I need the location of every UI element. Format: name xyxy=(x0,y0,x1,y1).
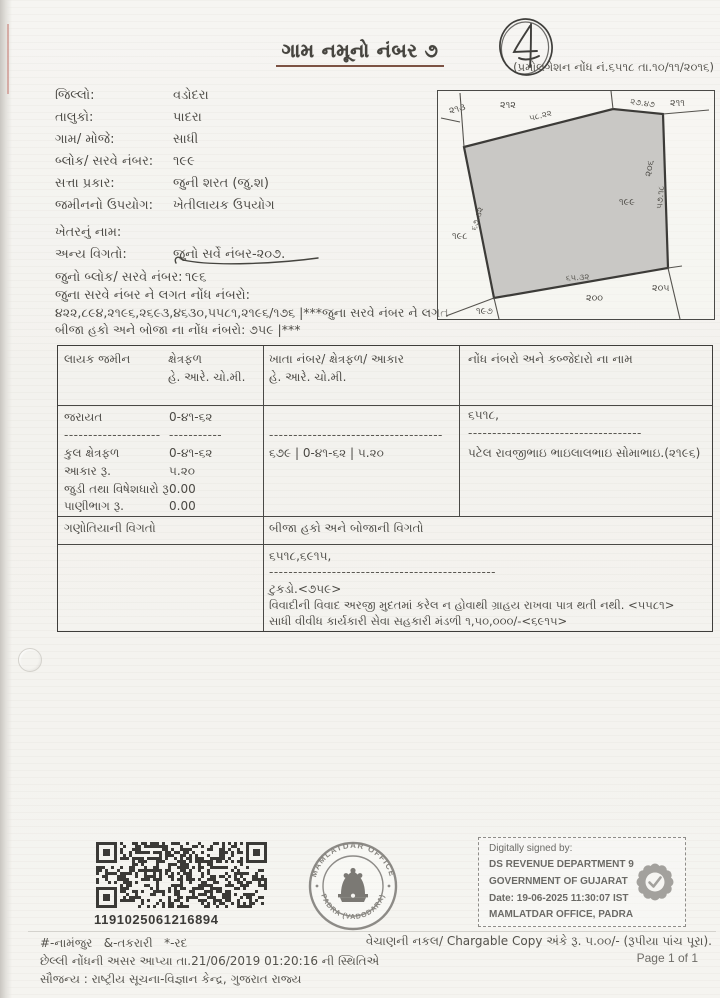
parcel-sketch-svg: ૨૧૩ ૨૧૨ ૫૮.૨૨ ૨૭.૪૭ ૨૧૧ ૨૦૬ ૫૭.૧૮ ૧૯૯ ૧૯… xyxy=(438,91,714,319)
table-subheader-rule xyxy=(58,544,712,545)
tenant-details-header: ગણોતિયાની વિગતો xyxy=(64,521,156,536)
other-rights-dispute: વિવાદીની વિવાદ અરજી મુદતમાં કરેલ ન હોવાથ… xyxy=(269,598,674,613)
footer-divider xyxy=(28,931,716,932)
sig-signer: DS REVENUE DEPARTMENT 9 xyxy=(489,859,634,870)
header-area: ક્ષેત્રફળ xyxy=(168,352,202,367)
parcel-199: ૧૯૯ xyxy=(619,197,635,208)
field-row-survey-number: બ્લોક/ સરવે નંબર:૧૯૯ xyxy=(55,154,195,169)
field-row-old-survey-number: જુનો બ્લોક/ સરવે નંબર:૧૯૬ xyxy=(55,270,206,285)
sig-org: GOVERNMENT OF GUJARAT xyxy=(489,876,628,887)
other-rights-society: સાધી વીવીધ કાર્યકારી સેવા સહકારી મંડળી ૧… xyxy=(269,614,567,629)
mamlatdar-office-stamp: MAMLATDAR OFFICE PADRA (VADODARA) xyxy=(307,840,399,932)
neighbor-211: ૨૧૧ xyxy=(670,98,685,109)
old-survey-notes-label: જુના સરવે નંબર ને લગત નોંધ નંબરો: xyxy=(55,288,250,303)
header-eligible-land: લાયક જમીન xyxy=(64,352,130,367)
measure-right: ૫૭.૧૮ xyxy=(655,185,667,209)
other-rights-piece: ટુકડો.<૭૫૯> xyxy=(269,582,341,597)
promulgation-note: (પ્રમોલગેશન નોંધ નં.૬૫૧૮ તા.૧૦/૧૧/૨૦૧૬) xyxy=(513,60,714,75)
header-area-unit: હે. આરે. ચો.મી. xyxy=(168,370,245,385)
field-row-village: ગામ/ મોજે:સાધી xyxy=(55,132,198,147)
measure-top-right: ૨૭.૪૭ xyxy=(630,97,656,110)
measure-top: ૫૮.૨૨ xyxy=(528,108,554,123)
account-cell-separator: ------------------------------------ xyxy=(269,428,443,442)
scanned-document-page: ગામ નમૂનો નંબર ૭ (પ્રમોલગેશન નોંધ નં.૬૫૧… xyxy=(0,0,720,998)
sig-date: Date: 19-06-2025 11:30:07 IST xyxy=(489,893,629,904)
neighbor-213: ૨૧૩ xyxy=(448,102,468,117)
neighbor-205: ૨૦૫ xyxy=(652,283,670,294)
land-row: જરાયત0-૪૧-૬૨ xyxy=(64,410,212,425)
table-divider-1 xyxy=(263,346,264,631)
neighbor-198: ૧૯૮ xyxy=(452,231,468,242)
handwritten-underline xyxy=(170,254,322,270)
notes-cell-number: ૬૫૧૮, xyxy=(468,408,499,423)
other-rights-header: બીજા હકો અને બોજાની વિગતો xyxy=(269,521,424,536)
footer-legend: #-નામંજુર &-તકરારી *-રદ xyxy=(40,936,187,951)
land-row-separator: ------------------------------- xyxy=(64,428,222,442)
parcel-polygon xyxy=(464,109,668,298)
land-row-judi: જુડી તથા વિષેશધારો રૂ0.00 xyxy=(64,482,196,497)
digital-signature-box: Digitally signed by: DS REVENUE DEPARTME… xyxy=(478,837,686,927)
account-cell-value: ૬૭૯ | 0-૪૧-૬૨ | ૫.૨૦ xyxy=(269,446,384,461)
footer-last-note: છેલ્લી નોંધની અસર આપ્યા તા.21/06/2019 01… xyxy=(40,954,379,969)
land-row-total: કુલ ક્ષેત્રફળ0-૪૧-૬૨ xyxy=(64,446,212,461)
other-rights-numbers: ૬૫૧૮,૬૯૧૫, xyxy=(269,549,331,564)
other-rights-separator: ----------------------------------------… xyxy=(269,565,496,579)
scan-edge-shadow xyxy=(0,0,12,998)
page-title: ગામ નમૂનો નંબર ૭ xyxy=(276,40,445,67)
qr-number: 1191025061216894 xyxy=(94,912,219,927)
field-row-land-use: જમીનનો ઉપયોગ:ખેતીલાયક ઉપયોગ xyxy=(55,198,275,213)
header-notes-names: નોંધ નંબરો અને કબ્જેદારો ના નામ xyxy=(468,352,633,367)
neighbor-197: ૧૯૭ xyxy=(476,306,493,317)
measure-bottom: ૬૫.૩૨ xyxy=(566,272,591,284)
land-record-table: લાયક જમીન ક્ષેત્રફળ હે. આરે. ચો.મી. ખાતા… xyxy=(57,345,713,632)
table-section-rule xyxy=(58,516,712,517)
field-row-tenure: સત્તા પ્રકાર:જુની શરત (જુ.શ) xyxy=(55,176,269,191)
header-account: ખાતા નંબર/ ક્ષેત્રફળ/ આકાર xyxy=(269,352,404,367)
field-row-district: જિલ્લો:વડોદરા xyxy=(55,88,209,103)
land-row-assessment: આકાર રૂ.૫.૨૦ xyxy=(64,464,195,479)
verified-seal-icon xyxy=(635,862,675,902)
neighbor-212: ૨૧૨ xyxy=(500,100,516,111)
table-header-rule xyxy=(58,405,712,406)
table-divider-2 xyxy=(459,346,460,516)
notes-cell-separator: ------------------------------------ xyxy=(468,426,642,440)
neighbor-200: ૨૦૦ xyxy=(586,293,603,304)
occupant-name: પટેલ રાવજીભાઇ ભાઇલાલભાઇ સોમાભાઇ.(૨૧૯૬) xyxy=(468,446,700,461)
header-account-unit: હે. આરે. ચો.મી. xyxy=(269,370,346,385)
sig-label: Digitally signed by: xyxy=(489,843,572,854)
land-row-water-share: પાણીભાગ રૂ.0.00 xyxy=(64,499,196,514)
qr-code xyxy=(96,842,267,908)
field-row-farm-name: ખેતરનું નામ: xyxy=(55,225,173,240)
field-row-taluka: તાલુકો:પાદરા xyxy=(55,110,202,125)
page-number: Page 1 of 1 xyxy=(637,951,698,965)
punch-hole xyxy=(18,648,42,672)
footer-chargeable-copy: વેચાણની નકલ/ Chargable Copy અંકે રૂ. ૫.૦… xyxy=(366,934,712,949)
sig-office: MAMLATDAR OFFICE, PADRA xyxy=(489,909,633,920)
parcel-sketch-map: ૨૧૩ ૨૧૨ ૫૮.૨૨ ૨૭.૪૭ ૨૧૧ ૨૦૬ ૫૭.૧૮ ૧૯૯ ૧૯… xyxy=(437,90,715,320)
other-rights-notes-numbers: બીજા હકો અને બોજા ના નોંધ નંબરો: ૭૫૯ |**… xyxy=(55,322,635,338)
footer-courtesy: સૌજન્ય : રાષ્ટ્રીય સૂચના-વિજ્ઞાન કેન્દ્ર… xyxy=(40,972,301,987)
